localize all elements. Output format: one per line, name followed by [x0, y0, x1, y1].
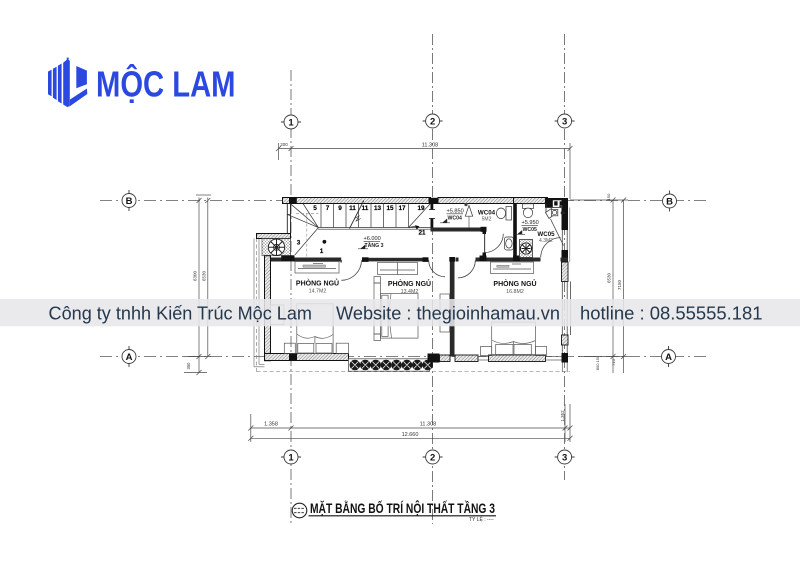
svg-text:350: 350 — [186, 362, 191, 370]
svg-text:TỶ LỆ : ----: TỶ LỆ : ---- — [469, 515, 494, 523]
svg-text:4.3M2: 4.3M2 — [539, 238, 553, 244]
svg-text:21: 21 — [418, 230, 426, 237]
svg-text:1: 1 — [320, 248, 324, 255]
svg-text:11: 11 — [362, 205, 369, 212]
svg-text:3: 3 — [562, 453, 567, 464]
svg-text:200: 200 — [280, 142, 288, 147]
svg-text:150: 150 — [606, 193, 611, 200]
svg-text:1.358: 1.358 — [264, 422, 278, 428]
svg-text:1: 1 — [288, 118, 294, 129]
svg-text:710: 710 — [611, 358, 616, 365]
svg-text:6300: 6300 — [193, 270, 198, 281]
svg-text:MỘC LAM: MỘC LAM — [96, 63, 236, 105]
svg-text:13: 13 — [374, 205, 382, 212]
svg-text:MẶT BẰNG BỐ TRÍ NỘI THẤT TẦNG: MẶT BẰNG BỐ TRÍ NỘI THẤT TẦNG 3 — [310, 499, 495, 516]
svg-text:PHÒNG NGỦ: PHÒNG NGỦ — [388, 279, 431, 288]
svg-text:13.4M2: 13.4M2 — [401, 289, 419, 295]
svg-text:WC04: WC04 — [478, 210, 496, 217]
svg-text:1.352: 1.352 — [560, 410, 565, 422]
svg-text:Website : thegioinhamau.vn: Website : thegioinhamau.vn — [336, 303, 560, 324]
svg-text:5M2: 5M2 — [482, 217, 492, 223]
svg-text:hotline : 08.55555.181: hotline : 08.55555.181 — [580, 303, 763, 324]
svg-text:6530: 6530 — [607, 272, 612, 283]
svg-text:5: 5 — [313, 205, 317, 212]
svg-text:TẦNG 3: TẦNG 3 — [365, 242, 384, 249]
svg-text:Công ty tnhh Kiến Trúc Mộc Lam: Công ty tnhh Kiến Trúc Mộc Lam — [49, 303, 313, 324]
svg-text:WC05: WC05 — [537, 231, 555, 238]
svg-text:3: 3 — [562, 117, 567, 128]
svg-text:PHÒNG NGỦ: PHÒNG NGỦ — [493, 279, 536, 288]
svg-text:A: A — [665, 352, 672, 363]
svg-text:15: 15 — [386, 205, 394, 212]
svg-text:A: A — [126, 352, 133, 363]
svg-text:9: 9 — [338, 205, 342, 212]
svg-text:800 150: 800 150 — [595, 355, 600, 370]
svg-text:1: 1 — [288, 453, 294, 464]
svg-text:2: 2 — [430, 453, 435, 464]
svg-text:B: B — [126, 196, 133, 207]
svg-text:7150: 7150 — [617, 279, 622, 290]
svg-text:11.308: 11.308 — [422, 143, 438, 149]
svg-text:19: 19 — [417, 205, 425, 212]
svg-text:6530: 6530 — [202, 270, 207, 281]
svg-text:2: 2 — [430, 117, 435, 128]
svg-text:WC04: WC04 — [448, 216, 463, 222]
svg-text:12.660: 12.660 — [402, 432, 419, 438]
svg-text:PHÒNG NGỦ: PHÒNG NGỦ — [296, 279, 339, 288]
svg-text:16.8M2: 16.8M2 — [506, 289, 524, 295]
svg-text:11: 11 — [349, 205, 356, 212]
svg-text:11.308: 11.308 — [420, 422, 436, 428]
svg-text:B: B — [666, 197, 673, 208]
svg-text:3: 3 — [297, 240, 301, 247]
svg-text:14.7M2: 14.7M2 — [309, 289, 327, 295]
svg-text:7: 7 — [326, 205, 330, 212]
svg-text:17: 17 — [398, 205, 406, 212]
svg-text:WC05: WC05 — [523, 227, 538, 233]
